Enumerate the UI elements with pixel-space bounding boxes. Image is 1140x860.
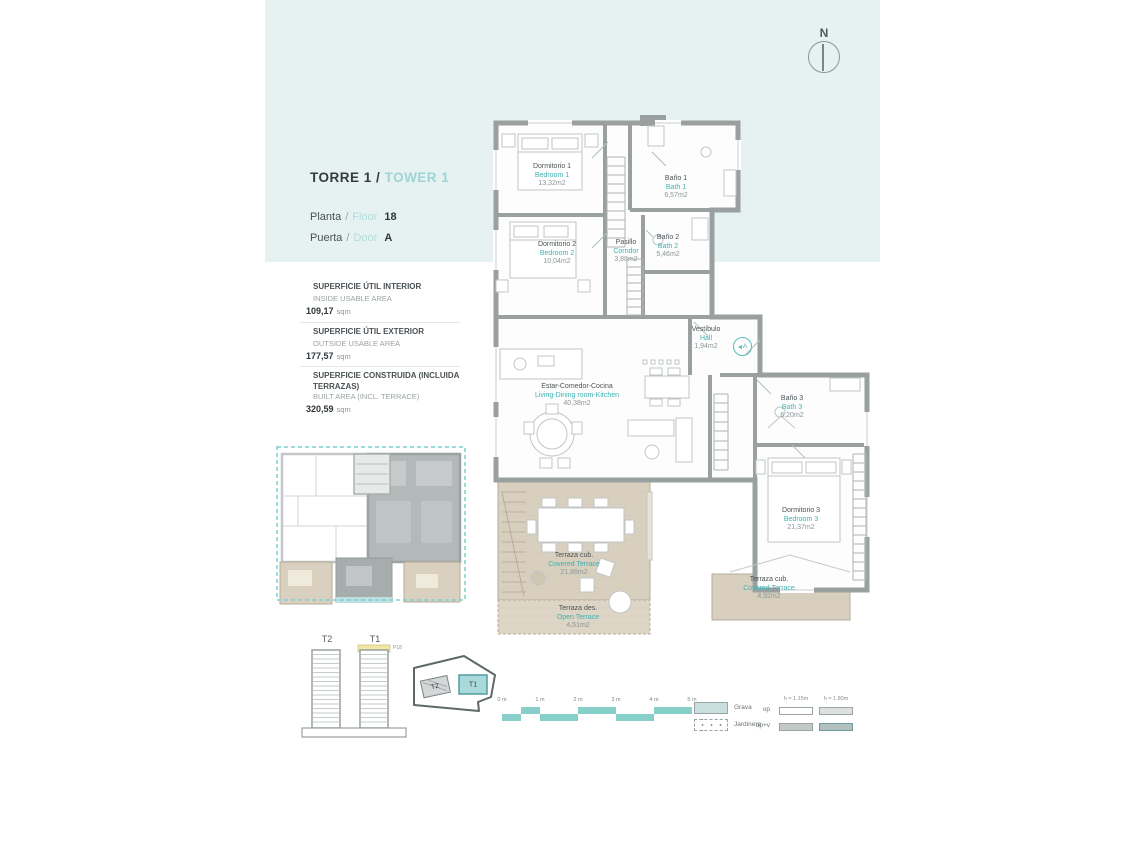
- room-area: 4,51m2: [557, 622, 599, 631]
- room-name-en: Bath 1: [664, 184, 687, 193]
- area1-label-en: INSIDE USABLE AREA: [313, 294, 392, 303]
- scale-tick: 4 m: [649, 697, 658, 703]
- op-label: op: [746, 706, 770, 713]
- room-name-en: Bedroom 1: [533, 172, 571, 181]
- room-area: 13,32m2: [533, 180, 571, 189]
- height1-label: h = 1.15m: [777, 696, 815, 702]
- room-name-es: Dormitorio 2: [538, 241, 576, 250]
- room-label-bedroom3: Dormitorio 3 Bedroom 3 21,37m2: [782, 507, 820, 533]
- site-t1-label: T1: [469, 682, 477, 689]
- key-plan-drawing: [276, 446, 466, 608]
- door-label-en: Door: [353, 232, 377, 244]
- scale-tick: 0 m: [497, 697, 506, 703]
- room-area: 21,86m2: [548, 569, 600, 578]
- room-label-bath1: Baño 1 Bath 1 6,57m2: [664, 175, 687, 201]
- gravel-swatch: [694, 702, 728, 714]
- scale-tick: 1 m: [535, 697, 544, 703]
- door-sep: /: [346, 232, 349, 244]
- scale-segment: [521, 707, 540, 714]
- room-name-en: Bedroom 2: [538, 250, 576, 259]
- room-name-en: Covered Terrace: [743, 585, 795, 594]
- room-area: 21,37m2: [782, 524, 820, 533]
- compass-circle-icon: [808, 41, 840, 73]
- room-area: 40,38m2: [535, 400, 619, 409]
- floor-label-es: Planta: [310, 211, 341, 223]
- room-name-es: Estar-Comedor-Cocina: [535, 383, 619, 392]
- room-name-es: Terraza des.: [557, 605, 599, 614]
- key-plan: [276, 446, 466, 608]
- room-name-es: Dormitorio 1: [533, 163, 571, 172]
- main-floor-plan: [480, 112, 910, 642]
- room-label-bedroom2: Dormitorio 2 Bedroom 2 10,04m2: [538, 241, 576, 267]
- scale-segment: [502, 714, 521, 721]
- room-name-es: Baño 3: [780, 395, 803, 404]
- entrance-arrow-icon: [738, 345, 742, 349]
- door-label-es: Puerta: [310, 232, 342, 244]
- entrance-door-letter: A: [743, 343, 747, 350]
- scale-segment: [578, 707, 616, 714]
- scale-segment: [616, 714, 654, 721]
- entrance-badge: A: [733, 337, 752, 356]
- room-name-es: Terraza cub.: [743, 576, 795, 585]
- title-es: TORRE 1: [310, 170, 372, 185]
- scale-segment: [540, 714, 578, 721]
- room-label-bedroom1: Dormitorio 1 Bedroom 1 13,32m2: [533, 163, 571, 189]
- compass-needle-icon: [822, 44, 824, 71]
- room-name-en: Covered Terrace: [548, 561, 600, 570]
- title-sep: /: [376, 170, 380, 185]
- legend: Grava Jardinera op op+v h = 1.15m h = 1.…: [692, 694, 862, 738]
- floor-value: 18: [384, 211, 396, 223]
- room-label-covered-terrace-right: Terraza cub. Covered Terrace 4,92m2: [743, 576, 795, 602]
- floor-plan-drawing: [480, 112, 910, 642]
- room-label-open-terrace: Terraza des. Open Terrace 4,51m2: [557, 605, 599, 631]
- room-area: 4,92m2: [743, 593, 795, 602]
- north-label: N: [820, 26, 829, 40]
- opv-h2-swatch: [819, 723, 853, 731]
- scale-tick: 3 m: [611, 697, 620, 703]
- tower-diagram: T2 T1 P18 T2 T1: [296, 630, 508, 748]
- tower-drawing: [296, 630, 508, 748]
- scale-segment: [654, 707, 692, 714]
- room-area: 10,04m2: [538, 258, 576, 267]
- room-label-bath2: Baño 2 Bath 2 5,46m2: [656, 234, 679, 260]
- room-area: 5,46m2: [656, 251, 679, 260]
- area1-label-es: SUPERFICIE ÚTIL INTERIOR: [313, 282, 465, 293]
- opv-h1-swatch: [779, 723, 813, 731]
- room-name-en: Living-Dining room-Kitchen: [535, 392, 619, 401]
- op-h1-swatch: [779, 707, 813, 715]
- planter-swatch: [694, 719, 728, 731]
- room-name-es: Pasillo: [613, 239, 638, 248]
- page-title: TORRE 1 / TOWER 1: [310, 170, 449, 185]
- room-name-es: Dormitorio 3: [782, 507, 820, 516]
- scale-bar: 0 m 1 m 2 m 3 m 4 m 5 m: [502, 697, 702, 725]
- room-name-es: Baño 2: [656, 234, 679, 243]
- room-label-hall: Vestíbulo Hall 1,94m2: [692, 326, 721, 352]
- door-value: A: [384, 232, 392, 244]
- room-name-en: Open Terrace: [557, 614, 599, 623]
- room-name-es: Vestíbulo: [692, 326, 721, 335]
- room-name-en: Bedroom 3: [782, 516, 820, 525]
- room-area: 1,94m2: [692, 343, 721, 352]
- scale-tick: 2 m: [573, 697, 582, 703]
- area3-label-es: SUPERFICIE CONSTRUIDA (INCLUIDA TERRAZAS…: [313, 371, 465, 392]
- room-name-en: Corridor: [613, 248, 638, 257]
- op-h2-swatch: [819, 707, 853, 715]
- room-label-bath3: Baño 3 Bath 3 6,20m2: [780, 395, 803, 421]
- floor-row: Planta/Floor18: [310, 211, 397, 223]
- opv-label: op+v: [746, 722, 770, 729]
- divider: [300, 366, 460, 367]
- area1-value: 109,17sqm: [306, 306, 351, 316]
- room-label-corridor: Pasillo Corridor 3,88m2: [613, 239, 638, 265]
- door-row: Puerta/DoorA: [310, 232, 392, 244]
- floorplan-page: N TORRE 1 / TOWER 1 Planta/Floor18 Puert…: [0, 0, 1140, 860]
- room-name-es: Terraza cub.: [548, 552, 600, 561]
- room-label-living: Estar-Comedor-Cocina Living-Dining room-…: [535, 383, 619, 409]
- divider: [300, 322, 460, 323]
- area2-label-en: OUTSIDE USABLE AREA: [313, 339, 400, 348]
- height2-label: h = 1.80m: [817, 696, 855, 702]
- area2-value: 177,57sqm: [306, 351, 351, 361]
- room-name-en: Bath 3: [780, 404, 803, 413]
- floor-sep: /: [345, 211, 348, 223]
- floor-label-en: Floor: [352, 211, 377, 223]
- area2-label-es: SUPERFICIE ÚTIL EXTERIOR: [313, 327, 465, 338]
- room-name-es: Baño 1: [664, 175, 687, 184]
- area3-value: 320,59sqm: [306, 404, 351, 414]
- room-name-en: Hall: [692, 335, 721, 344]
- room-area: 6,57m2: [664, 192, 687, 201]
- area3-label-en: BUILT AREA (INCL. TERRACE): [313, 392, 419, 401]
- room-name-en: Bath 2: [656, 243, 679, 252]
- room-area: 3,88m2: [613, 256, 638, 265]
- title-en: TOWER 1: [385, 170, 450, 185]
- room-area: 6,20m2: [780, 412, 803, 421]
- room-label-covered-terrace-left: Terraza cub. Covered Terrace 21,86m2: [548, 552, 600, 578]
